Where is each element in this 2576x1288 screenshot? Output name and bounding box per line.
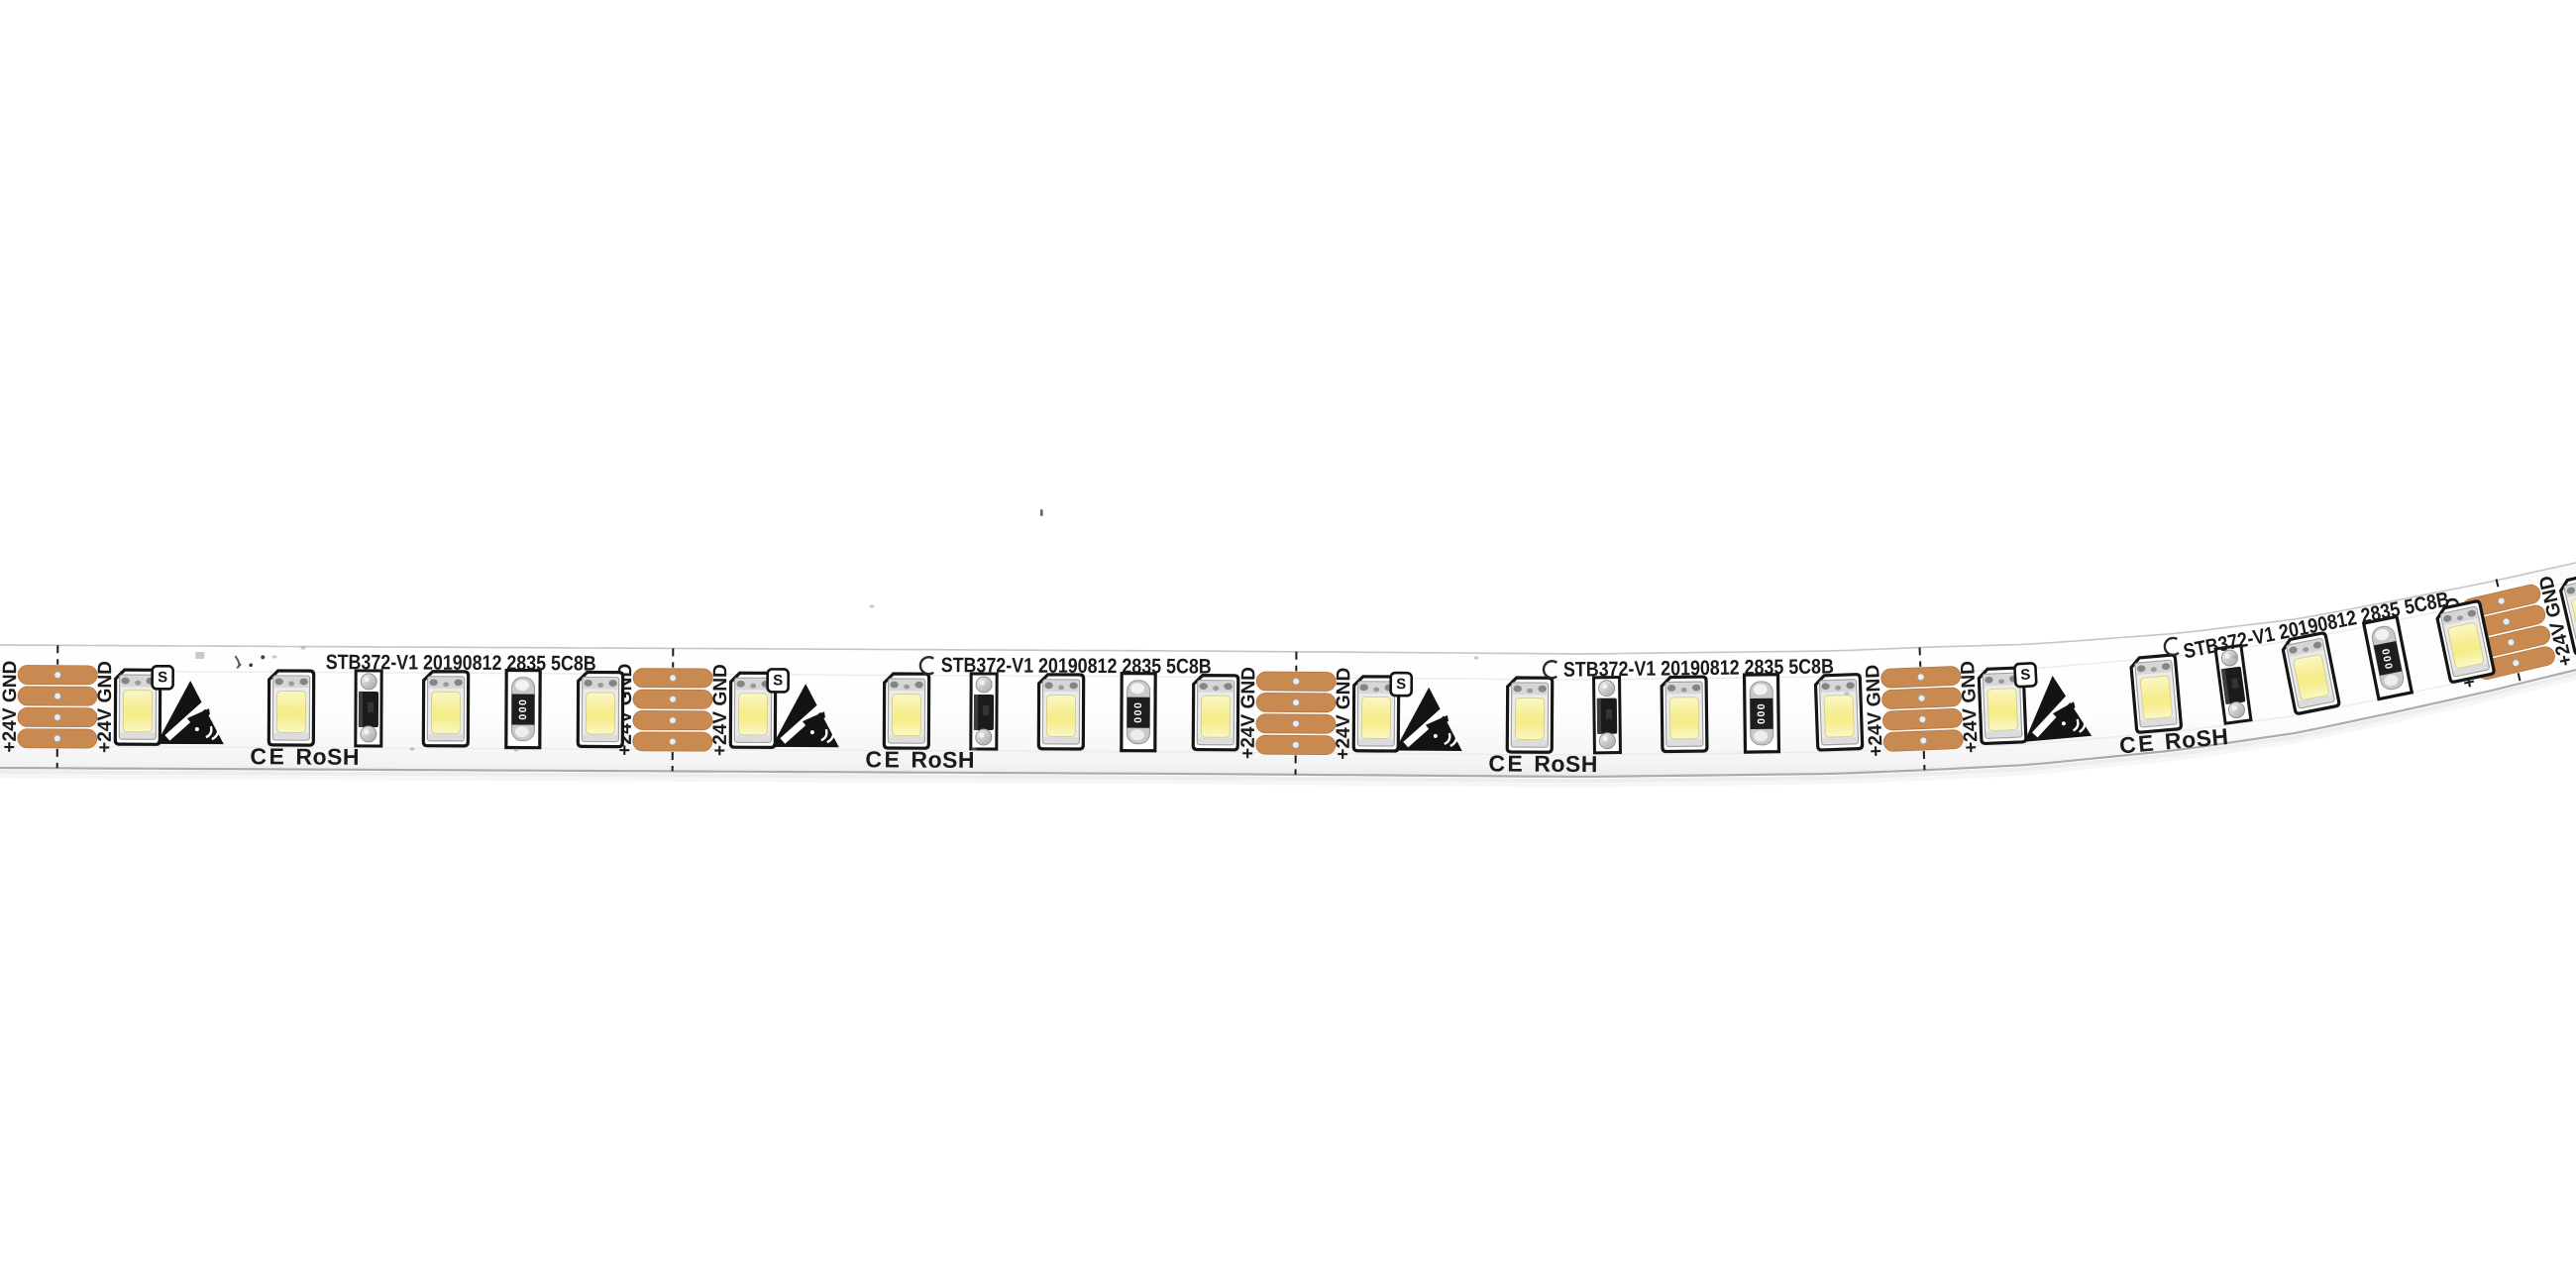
resistor-value: 000 [1756, 702, 1768, 724]
batch-code: STB372-V1 20190812 2835 5C8B [941, 654, 1212, 678]
smudge [1473, 656, 1478, 659]
solder-joint [1599, 681, 1615, 697]
ce-mark: CE [865, 746, 902, 772]
via-hole [1292, 741, 1299, 748]
smudge [409, 747, 414, 750]
led-strip-photo: +24V GND+24V GND+24V GND+24V GND+24V GND… [0, 0, 2576, 1288]
ce-rosh-marking: CERoSH [1488, 750, 1598, 777]
led-electrode [288, 682, 294, 687]
dust-speck [1040, 509, 1043, 516]
led-phosphor-emitter [1201, 696, 1230, 737]
batch-code-text: STB372-V1 20190812 2835 5C8B [326, 651, 596, 675]
via-hole [1293, 699, 1300, 706]
led-electrode [1513, 686, 1521, 693]
led-bottom-band [1822, 737, 1857, 744]
power-label-text: +24V GND [1333, 668, 1355, 760]
led-chip [2130, 655, 2181, 733]
led-electrode [1058, 685, 1064, 690]
via-hole [54, 714, 61, 721]
smudge [1844, 692, 1849, 695]
led-chip [1815, 675, 1863, 751]
power-label-text: +24V GND [94, 661, 116, 753]
led-electrode [135, 681, 141, 686]
via-hole [54, 735, 60, 742]
led-phosphor-emitter [892, 695, 920, 736]
via-hole [670, 717, 677, 724]
led-bottom-band [273, 733, 308, 739]
solder-shine [364, 729, 369, 734]
led-bottom-band [735, 735, 770, 741]
led-electrode [890, 682, 898, 689]
led-phosphor-emitter [1515, 698, 1544, 739]
led-electrode [1373, 687, 1379, 692]
via-hole [669, 738, 676, 745]
diode-marking [1606, 709, 1612, 719]
product-photo: +24V GND+24V GND+24V GND+24V GND+24V GND… [0, 0, 2576, 1288]
via-hole [54, 693, 61, 699]
led-bottom-band [1198, 738, 1233, 744]
diode-marking [368, 702, 374, 712]
led-phosphor-emitter [431, 692, 460, 733]
diode-body-highlight [359, 692, 363, 727]
smd-diode [356, 671, 381, 746]
led-phosphor-emitter [276, 691, 305, 732]
led-bottom-band [1043, 737, 1078, 743]
led-electrode [1359, 684, 1367, 691]
smudge [1223, 684, 1228, 687]
led-electrode [597, 683, 603, 688]
ce-rosh-text: CERoSH [865, 746, 975, 773]
smudge [869, 604, 874, 607]
rosh-mark: RoSH [295, 743, 360, 769]
smd-diode [971, 674, 997, 749]
led-chip [268, 671, 313, 745]
solder-joint [361, 674, 376, 690]
smd-diode [1594, 678, 1621, 753]
via-hole [1917, 674, 1924, 681]
via-hole [54, 672, 61, 679]
led-electrode [1527, 689, 1533, 694]
scribble-dot [261, 655, 265, 659]
esd-s-logo-icon: S [1391, 673, 1412, 696]
smudge [300, 646, 305, 649]
solder-shine [1130, 683, 1144, 694]
s-logo-letter: S [1396, 676, 1406, 693]
power-label-text: +24V GND [0, 661, 21, 753]
power-label: +24V GND [1862, 664, 1887, 757]
led-phosphor-emitter [1046, 695, 1075, 736]
led-electrode [904, 685, 910, 690]
esd-s-logo-icon: S [2014, 663, 2036, 687]
led-electrode [1199, 683, 1207, 690]
batch-code-text: STB372-V1 20190812 2835 5C8B [941, 654, 1212, 678]
rosh-mark: RoSH [1534, 751, 1598, 777]
ce-mark: CE [1488, 750, 1525, 776]
led-bottom-band [583, 734, 617, 740]
resistor-value: 000 [517, 698, 529, 720]
solder-shine [979, 732, 984, 737]
led-phosphor-emitter [586, 693, 614, 734]
diode-marking [983, 705, 989, 715]
led-chip [1662, 677, 1707, 752]
s-logo-letter: S [773, 672, 783, 689]
led-bottom-band [120, 732, 155, 738]
power-label-text: +24V GND [1862, 664, 1887, 757]
led-electrode [1538, 686, 1546, 693]
led-electrode [443, 682, 449, 687]
power-label: +24V GND [709, 664, 731, 756]
smudge [513, 748, 518, 751]
led-bottom-band [1512, 740, 1547, 746]
smudge [271, 655, 276, 658]
smd-resistor: 000 [1745, 675, 1779, 752]
via-hole [670, 675, 677, 682]
via-hole [1919, 716, 1926, 723]
esd-dot [195, 727, 199, 731]
led-electrode [736, 681, 744, 688]
smd-resistor: 000 [1122, 674, 1155, 751]
led-electrode [429, 679, 437, 686]
led-phosphor-emitter [1987, 689, 2018, 731]
via-hole [1920, 737, 1927, 744]
led-phosphor-emitter [1361, 697, 1390, 738]
led-phosphor-emitter [738, 694, 767, 735]
ce-mark: CE [250, 743, 286, 769]
led-electrode [121, 678, 129, 685]
diode-body-highlight [974, 695, 978, 730]
led-phosphor-emitter [1824, 695, 1854, 737]
power-label: +24V GND [94, 661, 116, 753]
solder-shine [1130, 729, 1144, 740]
via-hole [1918, 695, 1925, 701]
power-label: +24V GND [0, 661, 21, 753]
solder-shine [365, 677, 370, 682]
solder-shine [515, 726, 529, 737]
ce-rosh-marking: CERoSH [250, 743, 360, 770]
led-bottom-band [1667, 739, 1702, 745]
solder-joint [976, 677, 992, 693]
led-chip [1507, 678, 1553, 752]
led-electrode [750, 684, 756, 689]
esd-s-logo-icon: S [768, 669, 789, 692]
solder-joint [976, 729, 992, 745]
via-hole [1293, 720, 1300, 727]
led-chip [578, 672, 622, 746]
scribble-dot [249, 663, 253, 667]
solder-shine [980, 680, 985, 685]
rosh-mark: RoSH [911, 747, 975, 773]
solder-joint [1599, 733, 1615, 749]
led-chip [423, 672, 468, 746]
led-phosphor-emitter [1669, 698, 1699, 739]
led-phosphor-emitter [123, 691, 152, 732]
ce-rosh-text: CERoSH [1488, 750, 1598, 777]
led-bottom-band [1358, 739, 1393, 745]
esd-dot [810, 730, 814, 734]
led-bottom-band [428, 734, 463, 740]
smudge [2232, 655, 2237, 658]
power-label: +24V GND [1237, 667, 1260, 759]
via-hole [670, 696, 677, 702]
led-electrode [608, 680, 616, 687]
s-logo-letter: S [158, 669, 167, 686]
ce-mark: CE [2118, 729, 2157, 758]
led-electrode [914, 682, 922, 689]
batch-code: STB372-V1 20190812 2835 5C8B [1563, 655, 1834, 681]
esd-dot [1434, 734, 1438, 738]
led-electrode [1069, 683, 1077, 690]
solder-joint [361, 726, 376, 742]
esd-s-logo-icon: S [153, 666, 173, 689]
led-electrode [584, 680, 591, 687]
faded-print [195, 652, 204, 659]
smudge [971, 747, 976, 750]
power-label-text: +24V GND [1237, 667, 1260, 759]
led-electrode [454, 679, 462, 686]
led-electrode [274, 679, 282, 686]
smd-resistor: 000 [506, 671, 540, 748]
power-label-text: +24V GND [709, 664, 731, 756]
batch-code: STB372-V1 20190812 2835 5C8B [326, 651, 596, 675]
ce-rosh-text: CERoSH [250, 743, 360, 770]
led-chip [1038, 675, 1083, 749]
resistor-value: 000 [1132, 701, 1144, 723]
s-logo-letter: S [2020, 666, 2031, 684]
solder-shine [515, 680, 529, 691]
diode-body-highlight [1597, 698, 1601, 734]
via-hole [1293, 678, 1300, 685]
led-chip [1193, 676, 1238, 750]
led-phosphor-emitter [2140, 676, 2173, 719]
led-electrode [299, 679, 307, 686]
led-electrode [1044, 682, 1052, 689]
led-electrode [1213, 686, 1219, 691]
batch-code-text: STB372-V1 20190812 2835 5C8B [1563, 655, 1834, 681]
led-bottom-band [889, 736, 923, 742]
power-label: +24V GND [1333, 668, 1355, 760]
ce-rosh-marking: CERoSH [865, 746, 975, 773]
led-chip [884, 674, 928, 748]
